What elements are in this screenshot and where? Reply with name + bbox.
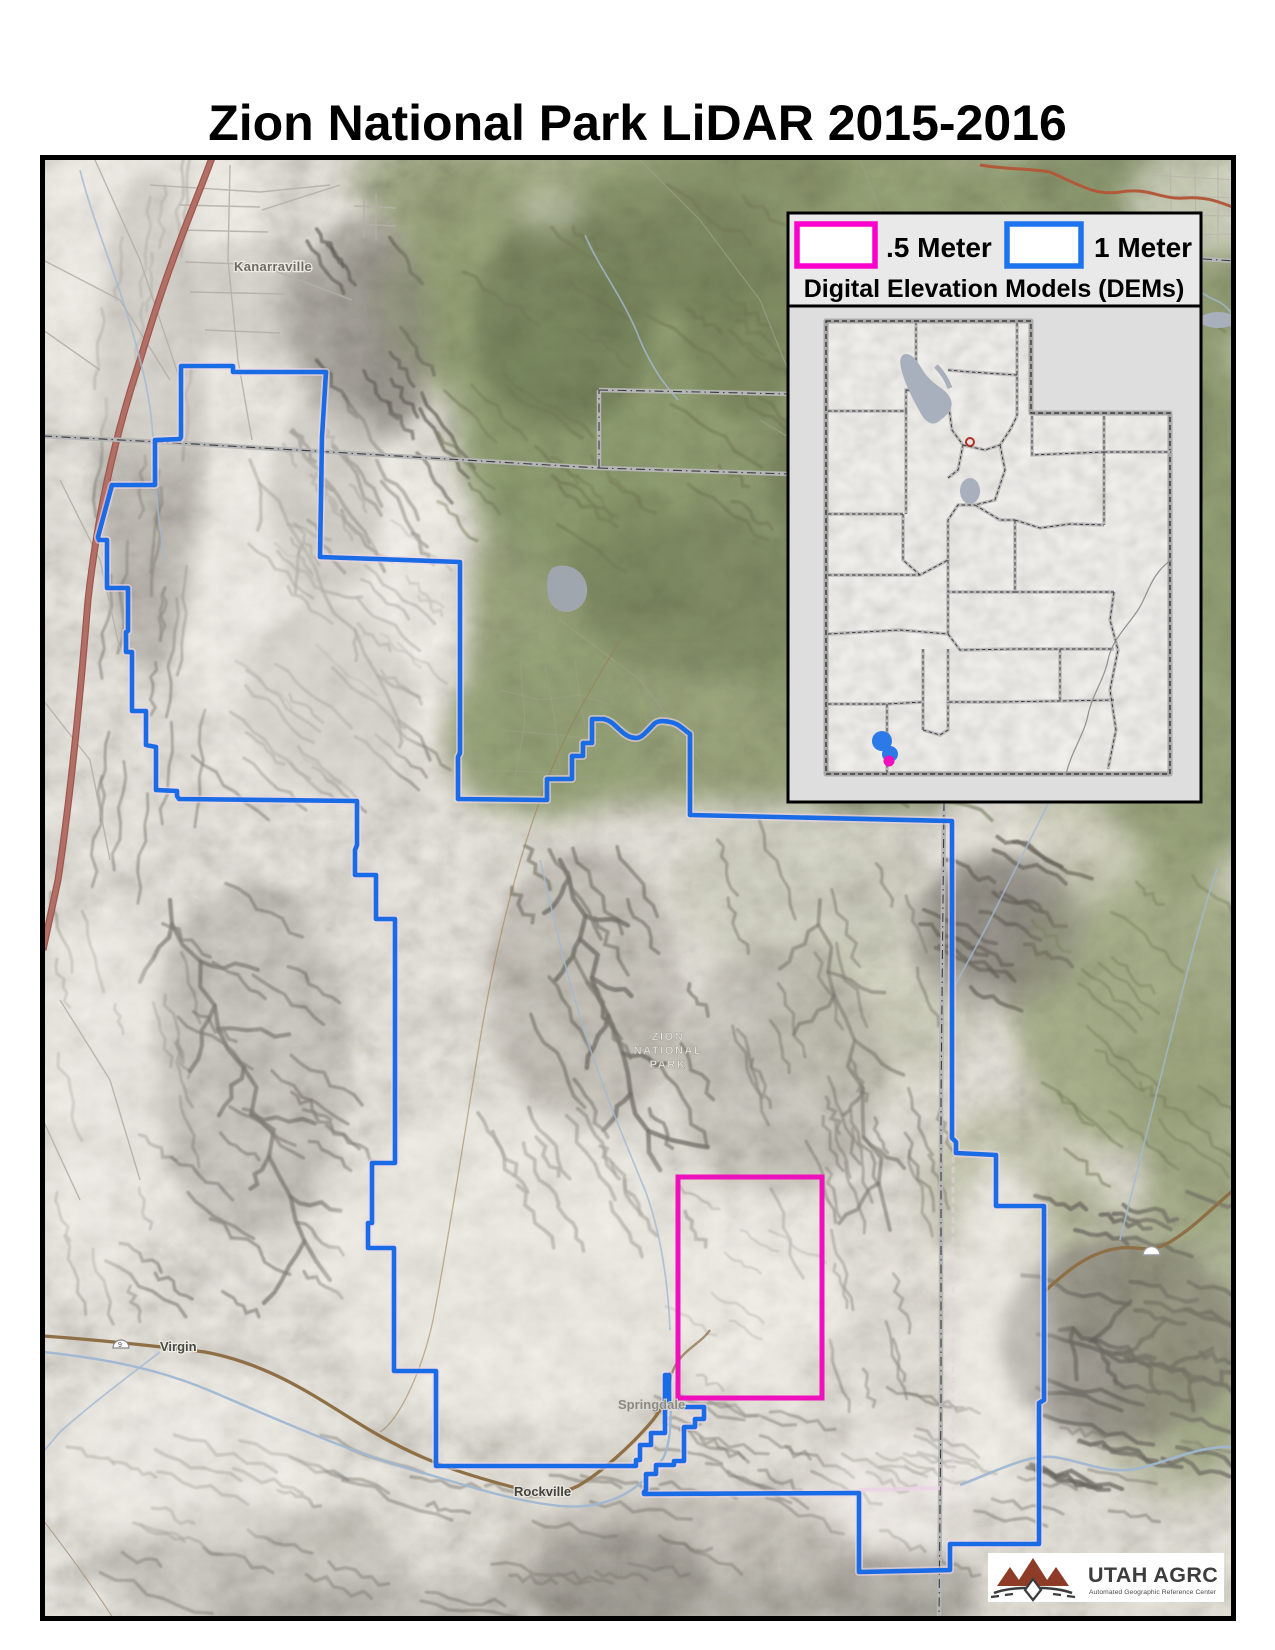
svg-text:1 Meter: 1 Meter: [1094, 232, 1192, 263]
svg-text:Digital Elevation Models (DEMs: Digital Elevation Models (DEMs): [804, 275, 1185, 303]
svg-text:Kanarraville: Kanarraville: [234, 259, 312, 274]
svg-text:ZION: ZION: [652, 1031, 685, 1043]
svg-text:UTAH AGRC: UTAH AGRC: [1088, 1563, 1218, 1587]
svg-text:PARK: PARK: [650, 1059, 687, 1071]
svg-text:Rockville: Rockville: [514, 1484, 571, 1499]
svg-text:Automated Geographic Reference: Automated Geographic Reference Center: [1089, 1589, 1217, 1596]
svg-text:Virgin: Virgin: [160, 1339, 197, 1354]
svg-text:9: 9: [118, 1342, 122, 1349]
svg-text:NATIONAL: NATIONAL: [634, 1045, 703, 1057]
svg-text:Springdale: Springdale: [618, 1397, 685, 1412]
svg-text:.5 Meter: .5 Meter: [886, 232, 992, 263]
